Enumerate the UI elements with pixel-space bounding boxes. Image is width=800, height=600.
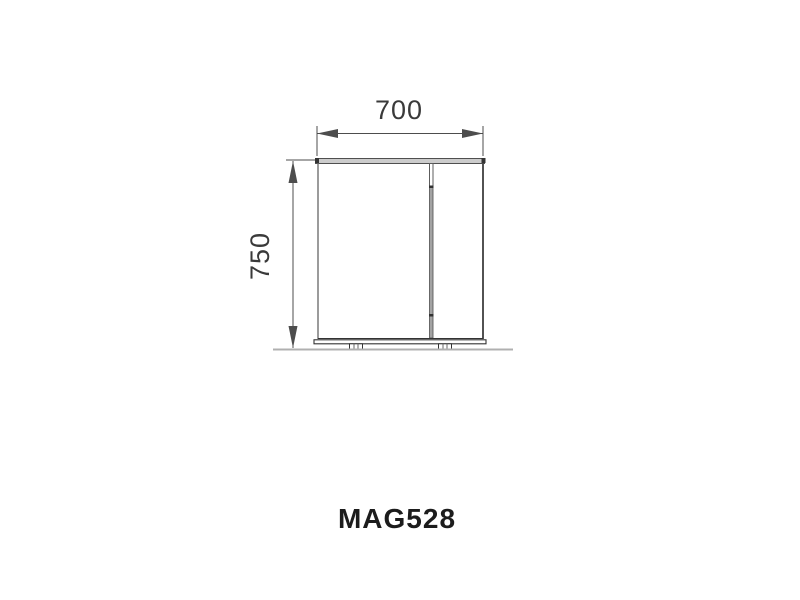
divider-hinge-mark-top: [429, 186, 434, 189]
arrow-down-icon: [289, 326, 298, 348]
arrow-left-icon: [317, 129, 338, 138]
width-dimension: 700: [317, 95, 483, 156]
top-left-corner-joint: [315, 158, 319, 163]
cabinet-foot-left: [350, 344, 363, 350]
top-right-corner-joint: [482, 158, 486, 163]
technical-drawing-svg: 700 750: [0, 0, 800, 600]
width-dimension-label: 700: [375, 95, 423, 125]
cabinet-top-panel: [316, 159, 485, 164]
cabinet-front-view: [273, 158, 513, 350]
arrow-up-icon: [289, 161, 298, 183]
cabinet-foot-right: [439, 344, 452, 350]
door-divider-gap: [430, 164, 434, 187]
height-dimension-label: 750: [245, 232, 275, 280]
foot-left-outline: [350, 344, 363, 350]
arrow-right-icon: [462, 129, 483, 138]
cabinet-plinth: [314, 340, 486, 344]
product-code-title: MAG528: [338, 503, 456, 534]
divider-hinge-mark-bottom: [429, 314, 434, 317]
height-dimension: 750: [245, 160, 316, 348]
foot-right-outline: [439, 344, 452, 350]
drawing-canvas: 700 750: [0, 0, 800, 600]
